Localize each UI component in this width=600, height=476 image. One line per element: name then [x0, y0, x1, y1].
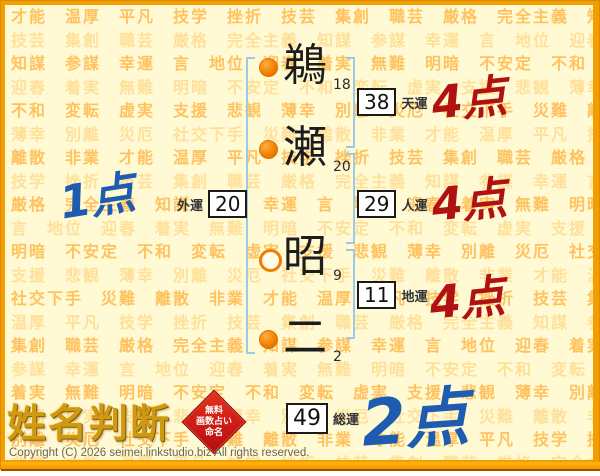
name-character: 二 — [283, 315, 327, 361]
free-naming-stamp[interactable]: 無料 画数占い 命名 — [181, 389, 246, 454]
outer-luck-score: 1点 — [54, 156, 138, 232]
earth-luck-label: 地運 — [401, 286, 427, 305]
earth-luck-score: 4点 — [426, 259, 507, 331]
site-logo[interactable]: 姓名判断 — [7, 393, 171, 449]
heaven-luck-value: 38 — [357, 88, 396, 116]
stamp-line: 画数占い — [196, 417, 232, 428]
stroke-count: 2 — [333, 349, 342, 365]
heaven-luck-label: 天運 — [401, 93, 427, 112]
person-luck-score: 4点 — [428, 161, 509, 233]
stroke-count: 20 — [333, 159, 351, 175]
outer-luck-group: 外運 20 — [177, 190, 247, 218]
name-character: 瀬 — [283, 125, 327, 171]
stamp-text: 無料 画数占い 命名 — [184, 398, 244, 446]
stamp-line: 命名 — [205, 428, 223, 439]
name-character: 鵜 — [283, 43, 327, 89]
stroke-marker-hollow-icon — [259, 249, 282, 272]
name-character: 昭 — [283, 234, 327, 280]
heaven-luck-group: 38 天運 — [357, 88, 427, 116]
outer-luck-value: 20 — [208, 190, 247, 218]
stroke-count: 18 — [333, 77, 351, 93]
person-luck-group: 29 人運 — [357, 190, 427, 218]
total-luck-label: 総運 — [333, 409, 359, 428]
stroke-marker-filled-icon — [259, 140, 278, 159]
name-char-row: 昭 9 — [251, 234, 361, 290]
name-char-row: 二 2 — [251, 315, 361, 371]
name-char-row: 鵜 18 — [251, 43, 361, 99]
stroke-marker-filled-icon — [259, 330, 278, 349]
stamp-line: 無料 — [205, 406, 223, 417]
total-luck-score: 2点 — [358, 365, 471, 464]
copyright-text: Copyright (C) 2026 seimei.linkstudio.biz… — [9, 447, 309, 459]
stroke-marker-filled-icon — [259, 58, 278, 77]
name-diagram: 鵜 18 瀬 20 昭 9 二 2 38 天運 29 人運 11 地運 — [1, 1, 600, 471]
earth-luck-group: 11 地運 — [357, 281, 427, 309]
outer-luck-label: 外運 — [177, 195, 203, 214]
earth-luck-value: 11 — [357, 281, 396, 309]
person-luck-value: 29 — [357, 190, 396, 218]
total-luck-value: 49 — [286, 403, 328, 434]
stroke-count: 9 — [333, 268, 342, 284]
person-luck-label: 人運 — [401, 195, 427, 214]
page-frame: 才能 温厚 平凡 技学 挫折 技芸 集創 職芸 厳格 完全主義 知謀 参謀技芸 … — [0, 0, 600, 470]
name-char-row: 瀬 20 — [251, 125, 361, 181]
heaven-luck-score: 4点 — [428, 59, 509, 131]
total-luck-group: 49 総運 — [286, 403, 359, 434]
